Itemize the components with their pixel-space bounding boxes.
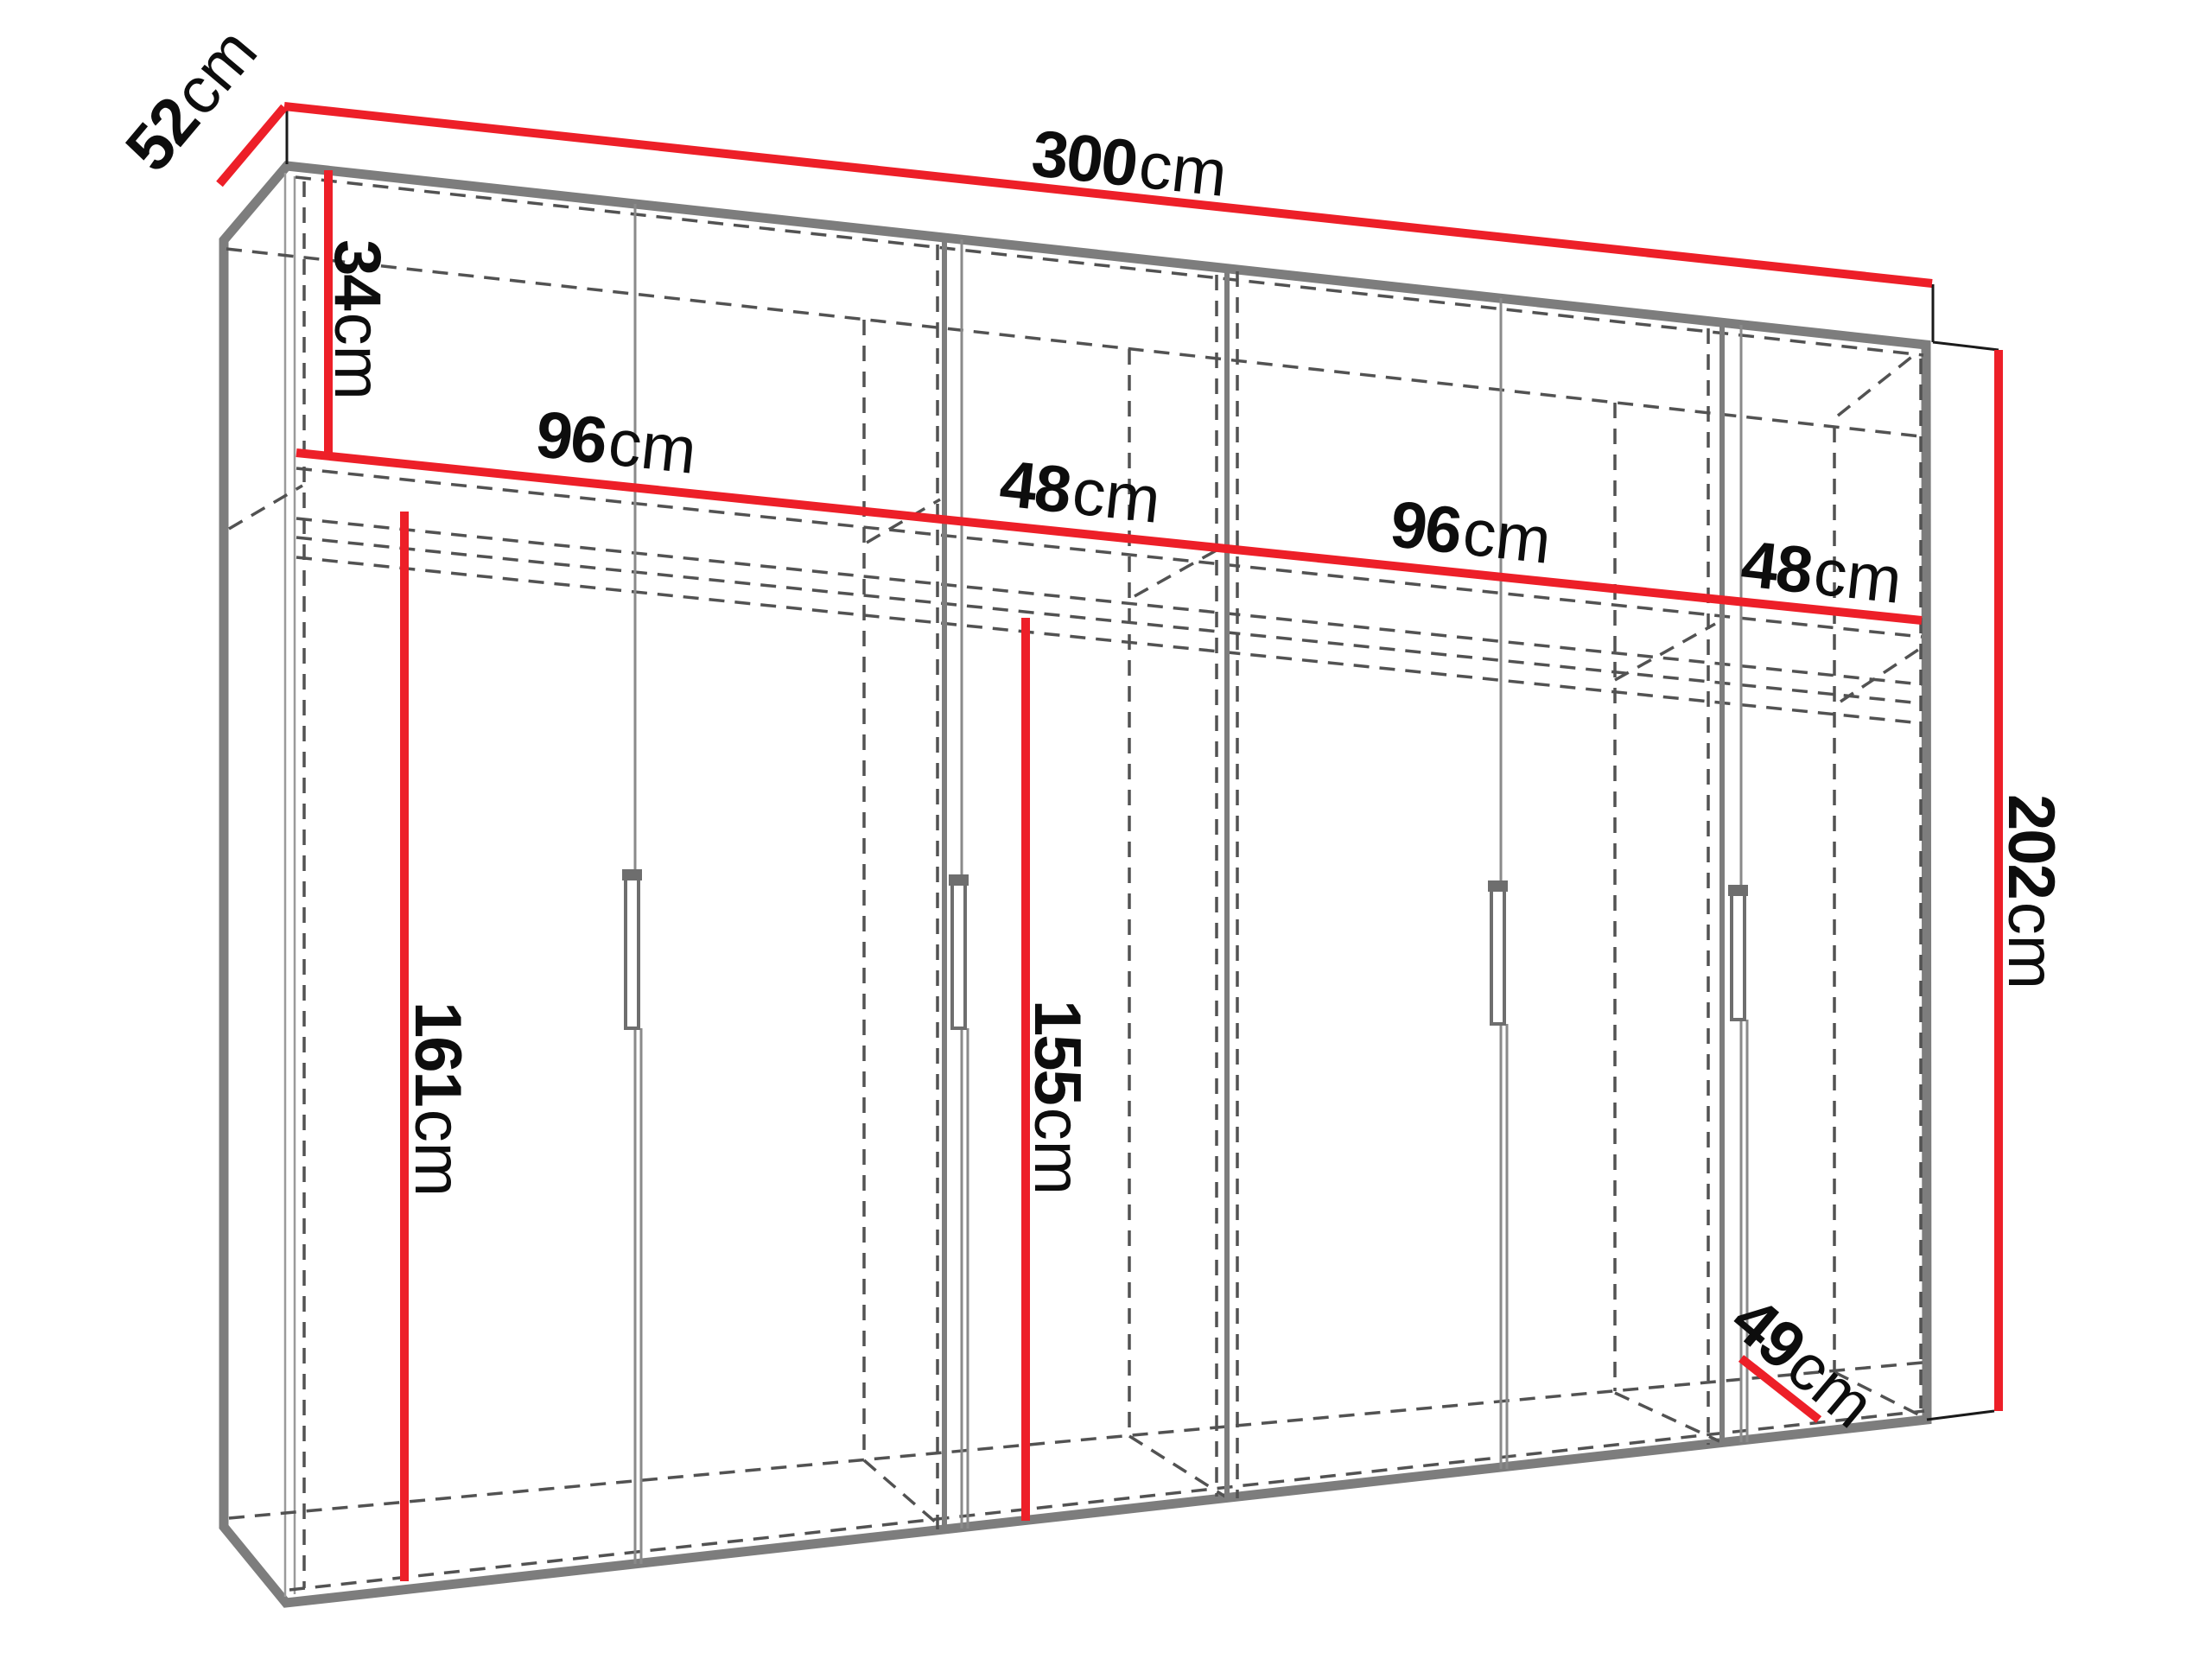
handle-cap (1730, 887, 1746, 894)
left-panel-inner-edges (285, 173, 295, 1597)
handle-cap (1490, 882, 1506, 890)
dim-line-section-widths (296, 453, 1922, 620)
wardrobe-dimension-diagram: 300cm52cm34cm96cm48cm96cm48cm202cm161cm1… (0, 0, 2212, 1659)
door-gap-lines (635, 204, 1747, 1564)
interior-partitions (944, 238, 1722, 1530)
handle-cap (950, 876, 967, 884)
hidden-construction-lines (226, 177, 1924, 1590)
handle-cap (624, 871, 640, 879)
dim-line-total-depth (219, 107, 284, 184)
wardrobe-drawing (0, 0, 2212, 1659)
dim-line-interior-depth-bottom (1741, 1358, 1819, 1420)
wardrobe-outline (224, 166, 1927, 1603)
door-handles (624, 871, 1746, 1028)
